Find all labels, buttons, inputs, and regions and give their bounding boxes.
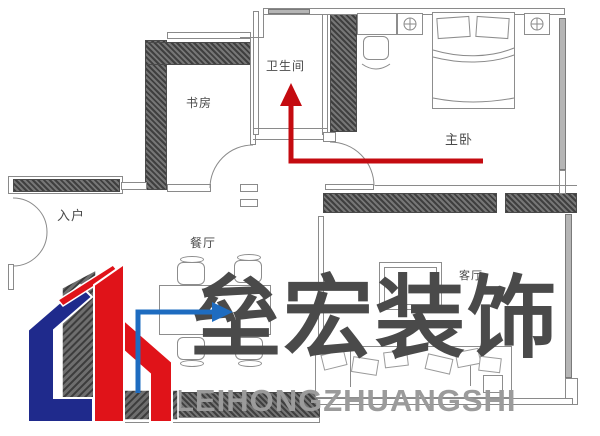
blue-route-arrowhead-icon xyxy=(212,302,233,322)
red-route-arrowhead-icon xyxy=(280,83,302,106)
floor-plan: 书房 卫生间 主卧 入户 餐厅 客厅 垒宏装饰 LEIHONGZHUANGSHI xyxy=(0,0,600,436)
route-arrows-layer xyxy=(0,0,600,436)
red-route-line xyxy=(291,101,483,161)
blue-route-line xyxy=(138,312,215,393)
